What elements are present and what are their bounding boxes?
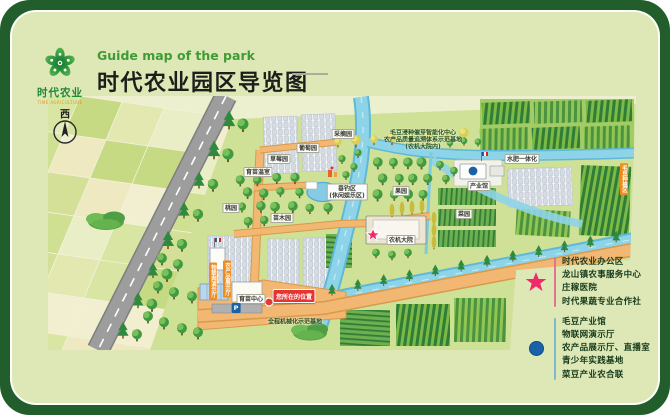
logo-name-en: TIME AGRICULTURE: [26, 100, 94, 105]
brand-logo: 时代农业 TIME AGRICULTURE: [26, 44, 94, 105]
legend-star-rule: [554, 257, 556, 307]
legend-dot-rule: [554, 318, 556, 380]
header-subtitle: Guide map of the park: [97, 48, 309, 63]
legend-dot-item-3: 青少年实践基地: [562, 355, 650, 368]
compass: [54, 121, 76, 143]
legend-dot-item-1: 物联网演示厅: [562, 329, 650, 342]
page-title: 时代农业园区导览图: [97, 65, 309, 97]
legend-star-icon: [520, 271, 552, 293]
legend-star-item-1: 龙山镇农事服务中心: [562, 269, 641, 282]
page-header: Guide map of the park 时代农业园区导览图: [97, 48, 309, 97]
map-card: 西草莓园葡萄园育苗温室桃园苗木园采摘园果园菜园垂钓区 (休闲娱乐区)产业馆农机大…: [10, 10, 660, 405]
legend-star-item-0: 时代农业办公区: [562, 256, 641, 269]
legend-dot-item-2: 农产品展示厅、直播室: [562, 342, 650, 355]
legend-star-items: 时代农业办公区龙山镇农事服务中心庄稼医院时代果蔬专业合作社: [562, 256, 641, 309]
legend-star-item-2: 庄稼医院: [562, 282, 641, 295]
map-legend: 时代农业办公区龙山镇农事服务中心庄稼医院时代果蔬专业合作社 毛豆产业馆物联网演示…: [520, 256, 660, 389]
legend-group-star: 时代农业办公区龙山镇农事服务中心庄稼医院时代果蔬专业合作社: [520, 256, 660, 309]
legend-dot-item-0: 毛豆产业馆: [562, 316, 650, 329]
legend-dot-items: 毛豆产业馆物联网演示厅农产品展示厅、直播室青少年实践基地菜豆产业农合联: [562, 316, 650, 382]
logo-name-cn: 时代农业: [26, 85, 94, 100]
blue-dot-marker: [468, 166, 478, 176]
legend-group-dot: 毛豆产业馆物联网演示厅农产品展示厅、直播室青少年实践基地菜豆产业农合联: [520, 316, 660, 382]
legend-star-item-3: 时代果蔬专业合作社: [562, 296, 641, 309]
legend-dot-item-4: 菜豆产业农合联: [562, 369, 650, 382]
outer-frame: 西草莓园葡萄园育苗温室桃园苗木园采摘园果园菜园垂钓区 (休闲娱乐区)产业馆农机大…: [0, 0, 670, 415]
header-rule: [292, 73, 328, 75]
you-are-here-dot: [265, 298, 273, 306]
legend-dot-icon: [520, 341, 552, 356]
logo-flower-icon: [39, 44, 81, 82]
